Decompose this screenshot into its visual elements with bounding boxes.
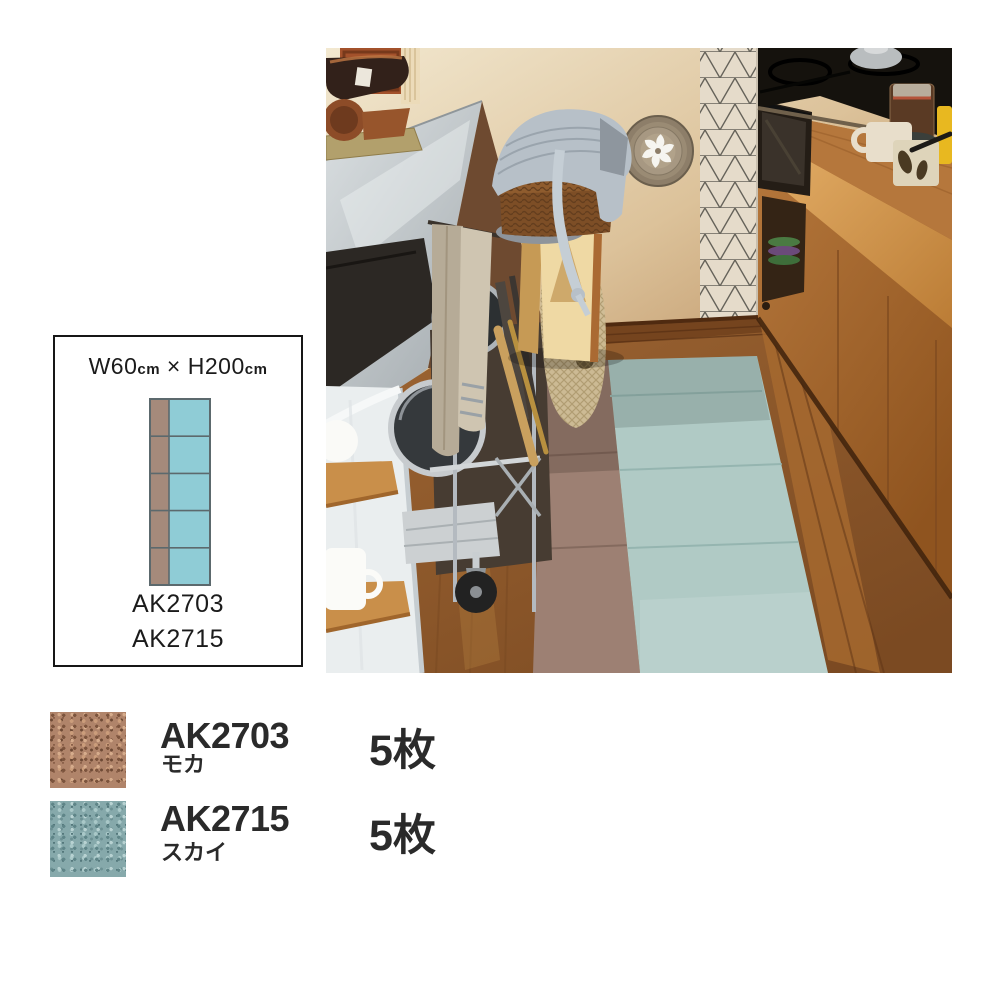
size-label: W60cm × H200cm — [55, 353, 301, 380]
size-diagram-box: W60cm × H200cm AK2703 AK2715 — [53, 335, 303, 667]
times-sign: × — [160, 353, 188, 379]
sheet-count-mocha: 5枚 — [369, 730, 436, 773]
height-value: H200 — [188, 353, 245, 379]
color-name-mocha: モカ — [161, 754, 205, 776]
tile-grid — [149, 398, 211, 586]
product-code-mocha: AK2703 — [160, 718, 289, 754]
color-swatch-sky — [50, 801, 126, 877]
diagram-code-sky: AK2715 — [55, 622, 301, 657]
diagram-codes: AK2703 AK2715 — [55, 587, 301, 657]
diagram-code-mocha: AK2703 — [55, 587, 301, 622]
product-code-sky: AK2715 — [160, 801, 289, 837]
width-value: W60 — [89, 353, 138, 379]
triangle-tile-wall — [700, 48, 758, 324]
kitchen-photo-art — [326, 48, 952, 673]
color-swatch-mocha — [50, 712, 126, 788]
width-unit: cm — [137, 361, 160, 378]
sheet-count-sky: 5枚 — [369, 815, 436, 858]
kitchen-photo — [326, 48, 952, 673]
pinwheel-plate — [623, 116, 693, 186]
height-unit: cm — [245, 361, 268, 378]
page: { "photo": { "description": "kitchen sce… — [0, 0, 1000, 1000]
color-name-sky: スカイ — [161, 842, 227, 864]
